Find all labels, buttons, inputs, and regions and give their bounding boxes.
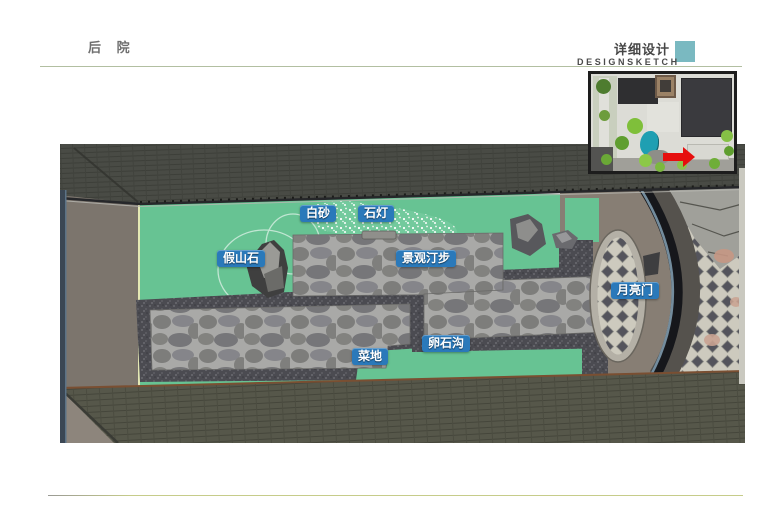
inset-tree [601, 154, 612, 165]
plan-label-pebble-ditch: 卵石沟 [422, 335, 470, 352]
plan-label-stepping-stones: 景观汀步 [396, 250, 456, 267]
location-arrow-icon [683, 147, 695, 167]
inset-tree [721, 130, 733, 142]
section-title: 后 院 [88, 37, 136, 56]
plan-label-stone-lantern: 石灯 [358, 205, 394, 222]
left-wall-edge [60, 190, 67, 443]
inset-roof-main [681, 78, 732, 137]
header-divider [40, 66, 742, 67]
inset-tree [596, 79, 611, 94]
plan-label-white-sand: 白砂 [300, 205, 336, 222]
inset-tree [655, 162, 665, 172]
inset-tree [709, 158, 720, 169]
inset-tree [599, 110, 610, 121]
footer-divider [48, 495, 743, 496]
slide-page: 后 院 详细设计 DESIGNSKETCH [0, 0, 782, 531]
inset-paving [647, 102, 679, 132]
inset-tree [639, 154, 652, 167]
inset-thumbnail [588, 71, 737, 174]
plan-label-vegetable-plot: 菜地 [352, 348, 388, 365]
inset-roof-small [618, 78, 658, 104]
plan-render: 白砂 石灯 假山石 景观汀步 月亮门 卵石沟 菜地 [60, 144, 745, 443]
side-wall-strip [60, 190, 142, 400]
plan-label-rockery-stone: 假山石 [217, 250, 265, 267]
location-arrow-icon [663, 153, 683, 161]
inset-tree [724, 146, 734, 156]
right-image-edge [739, 168, 745, 384]
inset-pavilion-core [660, 80, 671, 92]
inset-tree [615, 136, 629, 150]
plan-label-moon-gate: 月亮门 [611, 282, 659, 299]
header-right-title: 详细设计 [598, 39, 670, 58]
stone-lantern [362, 231, 396, 239]
inset-tree [627, 118, 643, 134]
